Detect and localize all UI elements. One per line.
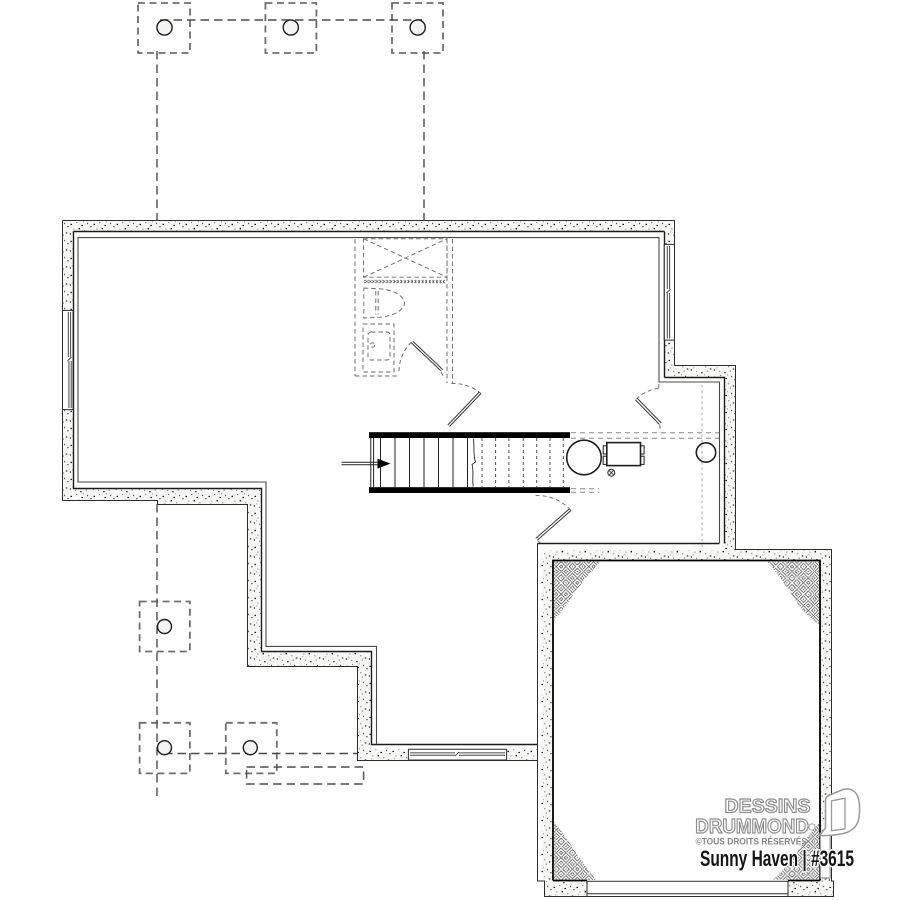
svg-text:DRUMMOND: DRUMMOND: [695, 816, 809, 838]
svg-text:DESSINS: DESSINS: [725, 796, 811, 818]
svg-text:©TOUS DROITS RÉSERVÉS: ©TOUS DROITS RÉSERVÉS: [696, 836, 808, 846]
svg-text:Sunny Haven | #3615: Sunny Haven | #3615: [700, 846, 854, 871]
